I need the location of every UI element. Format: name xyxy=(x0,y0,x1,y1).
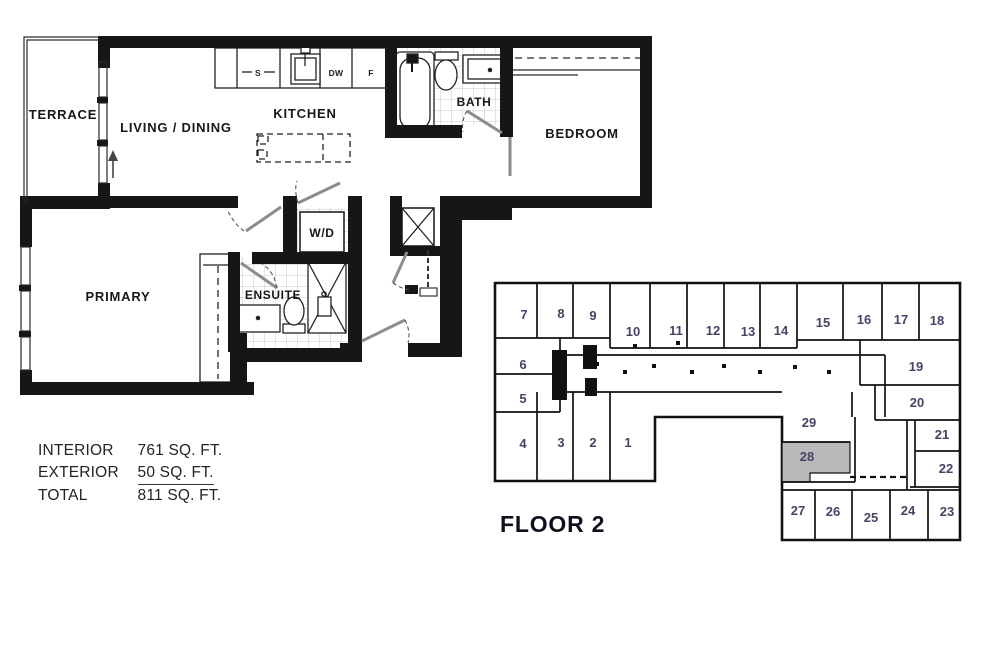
keyplan-unit-28: 28 xyxy=(800,449,814,464)
keyplan-unit-26: 26 xyxy=(826,504,840,519)
ensuite-toilet-fixture xyxy=(283,297,305,333)
area-row-exterior: EXTERIOR 50 SQ. FT. xyxy=(38,462,222,485)
keyplan-unit-10: 10 xyxy=(626,324,640,339)
keyplan-unit-21: 21 xyxy=(935,427,949,442)
dishwasher-label: DW xyxy=(329,68,344,78)
keyplan-unit-20: 20 xyxy=(910,395,924,410)
keyplan-unit-9: 9 xyxy=(589,308,596,323)
keyplan-unit-13: 13 xyxy=(741,324,755,339)
keyplan-unit-3: 3 xyxy=(557,435,564,450)
area-row-interior: INTERIOR 761 SQ. FT. xyxy=(38,440,222,462)
keyplan-unit-4: 4 xyxy=(519,436,527,451)
laundry-label: W/D xyxy=(309,226,334,240)
bath-label: BATH xyxy=(457,95,492,109)
kitchen-island xyxy=(257,134,350,162)
area-summary: INTERIOR 761 SQ. FT. EXTERIOR 50 SQ. FT.… xyxy=(38,440,222,507)
living-dining-label: LIVING / DINING xyxy=(120,120,232,135)
area-row-total: TOTAL 811 SQ. FT. xyxy=(38,485,222,507)
service-shaft xyxy=(402,208,434,246)
hall-closet-door-leaf xyxy=(393,252,407,283)
shower-fixture xyxy=(308,262,346,333)
keyplan-unit-2: 2 xyxy=(589,435,596,450)
keyplan-unit-14: 14 xyxy=(774,323,789,338)
keyplan-unit-27: 27 xyxy=(791,503,805,518)
terrace-label: TERRACE xyxy=(29,107,97,122)
fridge-label: F xyxy=(368,68,374,78)
keyplan-unit-19: 19 xyxy=(909,359,923,374)
keyplan-unit-29: 29 xyxy=(802,415,816,430)
area-label: TOTAL xyxy=(38,485,133,507)
keyplan-unit-6: 6 xyxy=(519,357,526,372)
toilet-fixture xyxy=(435,52,458,90)
keyplan-unit-11: 11 xyxy=(669,323,683,338)
ensuite-label: ENSUITE xyxy=(245,288,301,302)
kitchen-counter xyxy=(215,46,392,88)
keyplan: 1234567891011121314151617181920212223242… xyxy=(495,283,960,540)
keyplan-unit-5: 5 xyxy=(519,391,526,406)
keyplan-unit-25: 25 xyxy=(864,510,878,525)
keyplan-unit-1: 1 xyxy=(624,435,631,450)
area-label: INTERIOR xyxy=(38,440,133,462)
primary-label: PRIMARY xyxy=(85,289,150,304)
sink-label: S xyxy=(255,68,261,78)
keyplan-unit-12: 12 xyxy=(706,323,720,338)
keyplan-unit-17: 17 xyxy=(894,312,908,327)
north-arrow-icon xyxy=(108,150,118,178)
entry-door-leaf xyxy=(362,320,405,341)
area-value: 761 SQ. FT. xyxy=(138,440,223,462)
bathtub-fixture xyxy=(396,52,434,134)
kitchen-label: KITCHEN xyxy=(273,106,336,121)
area-value: 811 SQ. FT. xyxy=(138,485,222,507)
floorplan-page: TERRACE LIVING / DINING KITCHEN BATH BED… xyxy=(0,0,1000,662)
ensuite-vanity-fixture xyxy=(238,305,280,332)
laundry-door-leaf xyxy=(298,183,340,203)
keyplan-unit-24: 24 xyxy=(901,503,916,518)
floorplan-graphic: TERRACE LIVING / DINING KITCHEN BATH BED… xyxy=(0,0,1000,662)
keyplan-unit-8: 8 xyxy=(557,306,564,321)
area-value: 50 SQ. FT. xyxy=(138,462,214,485)
area-label: EXTERIOR xyxy=(38,462,133,484)
keyplan-unit-16: 16 xyxy=(857,312,871,327)
keyplan-unit-15: 15 xyxy=(816,315,830,330)
floor-label: FLOOR 2 xyxy=(500,511,605,538)
keyplan-unit-22: 22 xyxy=(939,461,953,476)
keyplan-unit-18: 18 xyxy=(930,313,944,328)
primary-door-leaf xyxy=(246,207,281,231)
keyplan-unit-7: 7 xyxy=(520,307,527,322)
bedroom-label: BEDROOM xyxy=(545,126,619,141)
keyplan-unit-23: 23 xyxy=(940,504,954,519)
